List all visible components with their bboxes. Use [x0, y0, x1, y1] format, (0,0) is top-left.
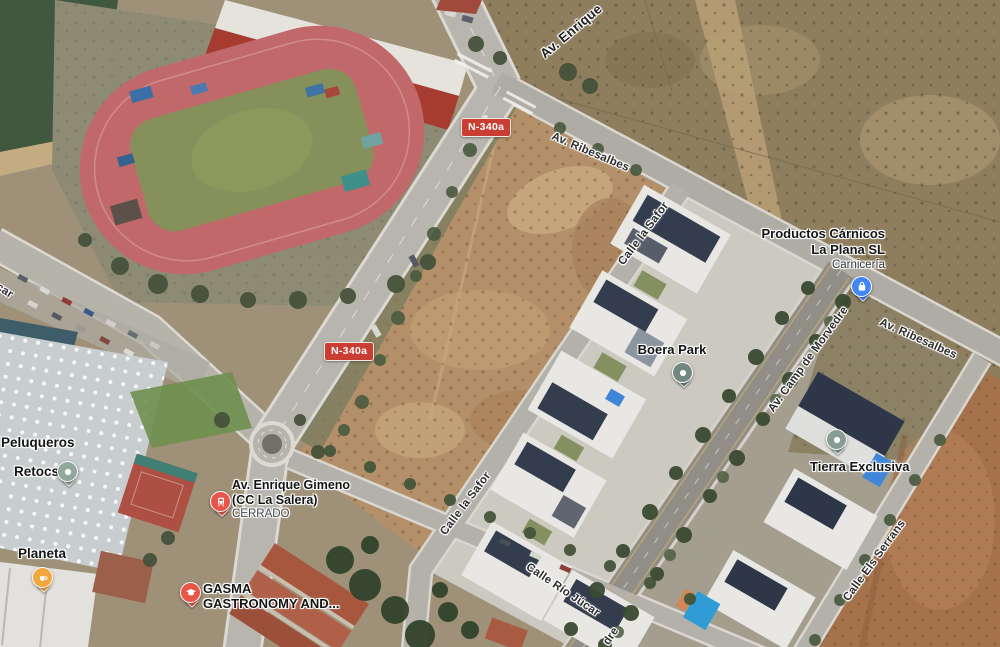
- train-icon: [210, 491, 231, 512]
- poi-label-tierra-exclusiva[interactable]: Tierra Exclusiva: [810, 459, 910, 475]
- poi-name-line: GASMA: [203, 581, 340, 596]
- poi-name-line: (CC La Salera): [232, 493, 350, 508]
- poi-label-retocs[interactable]: Retocs: [14, 464, 59, 480]
- poi-name-line: Tierra Exclusiva: [810, 459, 910, 475]
- place-dot-icon: [672, 362, 693, 383]
- poi-name-line: Boera Park: [612, 342, 732, 358]
- road-badge-n340a: N-340a: [461, 118, 511, 137]
- poi-label-productos-carnicos[interactable]: Productos Cárnicos La Plana SL Carnicerí…: [690, 226, 885, 272]
- poi-pin-gasma[interactable]: [180, 582, 202, 612]
- roundabout: [249, 421, 295, 467]
- shopping-bag-icon: [851, 276, 872, 297]
- satellite-imagery: [0, 0, 1000, 647]
- place-dot-icon: [57, 461, 78, 482]
- poi-status-closed: CERRADO: [232, 507, 350, 521]
- poi-label-cc-la-salera[interactable]: Av. Enrique Gimeno (CC La Salera) CERRAD…: [232, 478, 350, 521]
- poi-name-line: Productos Cárnicos: [690, 226, 885, 242]
- poi-name-line: Av. Enrique Gimeno: [232, 478, 350, 493]
- satellite-map[interactable]: Av. Enrique Av. Ribesalbes Av. Ribesalbe…: [0, 0, 1000, 647]
- road-badge-n340a: N-340a: [324, 342, 374, 361]
- place-dot-icon: [826, 429, 847, 450]
- poi-category: Carnicería: [690, 258, 885, 272]
- poi-pin-retocs[interactable]: [57, 461, 79, 491]
- poi-name-line: La Plana SL: [690, 242, 885, 258]
- poi-pin-productos-carnicos[interactable]: [851, 276, 873, 306]
- poi-name-line: GASTRONOMY AND...: [203, 596, 340, 611]
- poi-label-gasma[interactable]: GASMA GASTRONOMY AND...: [203, 581, 340, 611]
- poi-label-peluqueros[interactable]: Peluqueros: [1, 435, 75, 451]
- graduation-cap-icon: [180, 582, 201, 603]
- coffee-cup-icon: [32, 567, 53, 588]
- poi-pin-cc-la-salera[interactable]: [210, 491, 232, 521]
- poi-label-planeta[interactable]: Planeta: [18, 546, 66, 562]
- poi-pin-planeta[interactable]: [32, 567, 54, 597]
- poi-pin-tierra-exclusiva[interactable]: [826, 429, 848, 459]
- poi-label-boera-park[interactable]: Boera Park: [612, 342, 732, 358]
- poi-pin-boera-park[interactable]: [672, 362, 694, 392]
